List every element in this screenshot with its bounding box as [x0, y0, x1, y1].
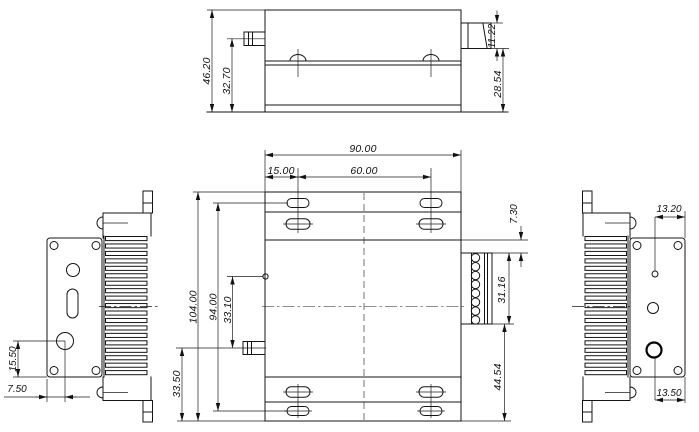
dim-front-overall-width: 90.00 [349, 143, 376, 155]
corner-hole [92, 242, 100, 250]
dim-top-overall-height: 46.20 [201, 57, 213, 84]
connector-pins [471, 254, 479, 324]
tab-bump [630, 387, 636, 398]
tab-screw [143, 191, 153, 213]
dim-left-edge-to-hole: 7.50 [7, 384, 27, 395]
left-side-view: 15.50 7.50 [4, 191, 158, 422]
corner-hole [674, 367, 682, 375]
dim-top-connector-height: 11.22 [487, 23, 498, 48]
threaded-hole [647, 343, 662, 358]
front-view: 90.00 15.00 60.00 104.00 94.00 33.10 33.… [171, 143, 528, 421]
front-view-dimensions: 90.00 15.00 60.00 104.00 94.00 33.10 33.… [171, 143, 528, 421]
front-view-centerlines [262, 193, 466, 420]
tab-bump [630, 217, 636, 229]
dim-right-hole-to-edge-top: 13.20 [656, 204, 681, 215]
dim-front-hole-to-stud: 33.10 [222, 296, 234, 323]
dim-front-connector-height: 31.16 [496, 276, 508, 303]
corner-hole [92, 367, 100, 375]
right-side-view: 13.20 13.50 [572, 191, 685, 422]
cad-drawing: 46.20 32.70 11.22 28.54 [0, 0, 699, 432]
tab-screw [143, 401, 153, 423]
tab-screw [583, 191, 593, 213]
front-view-crosshairs [176, 168, 446, 418]
dim-front-edge-to-connector: 7.30 [509, 204, 520, 224]
dim-front-overall-height: 104.00 [188, 290, 200, 323]
right-view-panel [630, 238, 685, 377]
left-view-panel [47, 238, 102, 377]
vertical-slot [67, 289, 78, 318]
dim-front-slot-spacing: 60.00 [350, 165, 377, 177]
upper-hole [67, 264, 80, 277]
tab-bump [97, 217, 103, 229]
top-view-body [207, 10, 508, 112]
corner-hole [674, 242, 682, 250]
cad-drawing-sheet: 46.20 32.70 11.22 28.54 [0, 0, 699, 432]
top-view: 46.20 32.70 11.22 28.54 [201, 10, 509, 112]
corner-hole [50, 367, 58, 375]
corner-hole [50, 242, 58, 250]
dim-front-connector-to-bottom: 44.54 [492, 363, 504, 390]
dim-right-hole-to-edge-bottom: 13.50 [656, 388, 681, 399]
dim-top-body-height: 32.70 [221, 67, 233, 94]
dim-front-slot-left-offset: 15.00 [267, 165, 294, 177]
middle-hole [648, 303, 659, 314]
front-view-connector [461, 253, 492, 324]
dim-top-connector-to-base: 28.54 [492, 70, 504, 98]
dim-front-stud-to-bottom: 33.50 [171, 370, 183, 397]
corner-hole [633, 367, 641, 375]
tab-bump [97, 387, 103, 398]
corner-hole [633, 242, 641, 250]
dim-front-slot-row-spacing: 94.00 [208, 293, 220, 320]
dim-left-hole-to-bottom: 15.50 [8, 346, 19, 371]
top-view-centerlines [227, 39, 431, 77]
tab-screw [583, 401, 593, 423]
small-hole [652, 271, 658, 277]
